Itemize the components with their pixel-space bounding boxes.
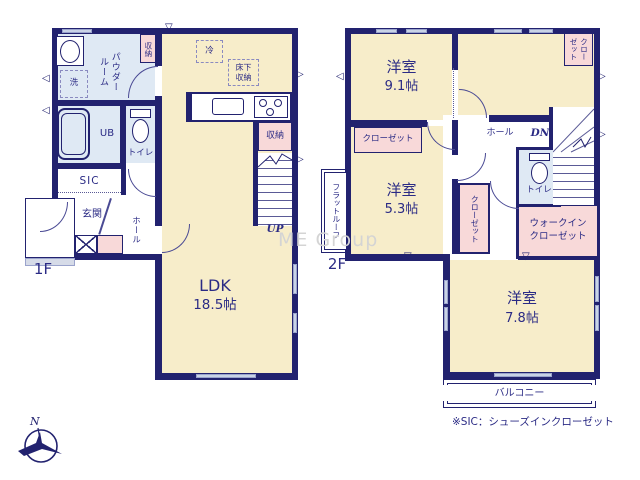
shoe-step-box <box>75 235 97 254</box>
vent-triangle-icon: ▷ <box>598 72 606 82</box>
bedroom-9-1-name: 洋室 <box>351 58 452 78</box>
window <box>293 264 297 294</box>
floor-plan: 洗 収納 UB トイレ SIC 玄関 ホール パウダー ルーム 冷 床下 収納 … <box>0 0 640 480</box>
vent-triangle-icon: ▽ <box>404 252 412 262</box>
wall <box>452 34 458 70</box>
toilet-tank-1f <box>130 109 151 118</box>
ldk-size: 18.5帖 <box>162 297 268 315</box>
wall <box>351 120 427 127</box>
window <box>444 307 448 331</box>
underfloor-storage-label: 床下 収納 <box>228 59 259 86</box>
window <box>494 29 522 33</box>
toilet-tank-2f <box>529 153 550 161</box>
vent-triangle-icon: ◁ <box>42 74 50 84</box>
wall <box>345 254 450 261</box>
walk-in-closet-label: ウォークイン クローゼット <box>518 216 598 246</box>
wall <box>52 100 155 106</box>
window <box>293 313 297 333</box>
bathtub-inner <box>61 113 86 155</box>
powder-room-label: パウダー ルーム <box>94 44 122 100</box>
stairs-2f-treads <box>553 150 594 205</box>
bedroom-7-8-name: 洋室 <box>450 289 594 309</box>
vent-triangle-icon: ▽ <box>522 252 530 262</box>
hall-label-2f: ホール <box>481 127 519 140</box>
toilet-label-2f: トイレ <box>523 185 555 197</box>
wall <box>121 169 126 195</box>
window <box>62 29 92 33</box>
vent-triangle-icon: ▷ <box>296 70 304 80</box>
compass-icon: N <box>12 410 70 472</box>
balcony-label: バルコニー <box>443 385 596 401</box>
dotted-partition <box>58 192 121 194</box>
window <box>494 373 552 377</box>
wall <box>52 163 126 169</box>
toilet-bowl-2f <box>531 162 548 184</box>
floor2-label: 2F <box>320 255 354 275</box>
stair-storage-label: 収納 <box>258 122 292 151</box>
window <box>376 29 397 33</box>
entrance-label: 玄関 <box>74 207 110 221</box>
dotted-partition <box>453 68 455 118</box>
window <box>406 29 427 33</box>
fridge-label: 冷 <box>196 40 223 63</box>
watermark: ME Group <box>278 229 378 251</box>
washbasin-bowl <box>60 40 80 63</box>
hall-label-1f: ホール <box>128 206 142 254</box>
vent-triangle-icon: ▷ <box>296 155 304 165</box>
closet-b-label: クローゼット <box>458 186 490 252</box>
stairs-2f-winder <box>553 107 594 153</box>
ldk-name: LDK <box>162 275 268 297</box>
kitchen-counter-end <box>186 92 192 122</box>
sic-label: SIC <box>58 174 121 189</box>
bedroom-7-8-size: 7.8帖 <box>450 311 594 327</box>
window <box>529 29 553 33</box>
vent-triangle-icon: ◁ <box>42 106 50 116</box>
laundry-label: 洗 <box>60 70 88 98</box>
wall <box>155 28 162 66</box>
compass-north-label: N <box>29 415 40 428</box>
stove-burner <box>259 99 267 107</box>
storage-top-label: 収納 <box>140 35 156 63</box>
stove-burner <box>266 108 274 116</box>
stairs-dn-label: DN <box>527 127 553 141</box>
bedroom-9-1-size: 9.1帖 <box>351 79 452 95</box>
kitchen-sink <box>212 98 244 115</box>
bedroom-5-3-size: 5.3帖 <box>351 202 452 218</box>
stove-burner <box>274 99 282 107</box>
vent-triangle-icon: ◁ <box>336 72 344 82</box>
window <box>444 280 448 304</box>
vent-triangle-icon: ▽ <box>165 23 173 33</box>
vent-triangle-icon: ▷ <box>598 130 606 140</box>
bedroom-5-3-name: 洋室 <box>351 181 452 201</box>
wall <box>155 96 162 226</box>
unit-bath-label: UB <box>92 126 122 140</box>
footnote: ※SIC：シューズインクローゼット <box>452 414 614 429</box>
stairs-break-line <box>258 153 292 171</box>
toilet-label-1f: トイレ <box>124 148 157 160</box>
wall <box>155 254 162 379</box>
closet-corner-label: クロー ゼット <box>564 34 592 65</box>
closet-a-label: クローゼット <box>354 127 422 153</box>
window <box>595 305 599 331</box>
toilet-bowl-1f <box>132 119 149 143</box>
window <box>196 374 256 378</box>
window <box>595 276 599 302</box>
floor1-label: 1F <box>26 260 60 280</box>
entrance-tataki <box>97 235 123 254</box>
